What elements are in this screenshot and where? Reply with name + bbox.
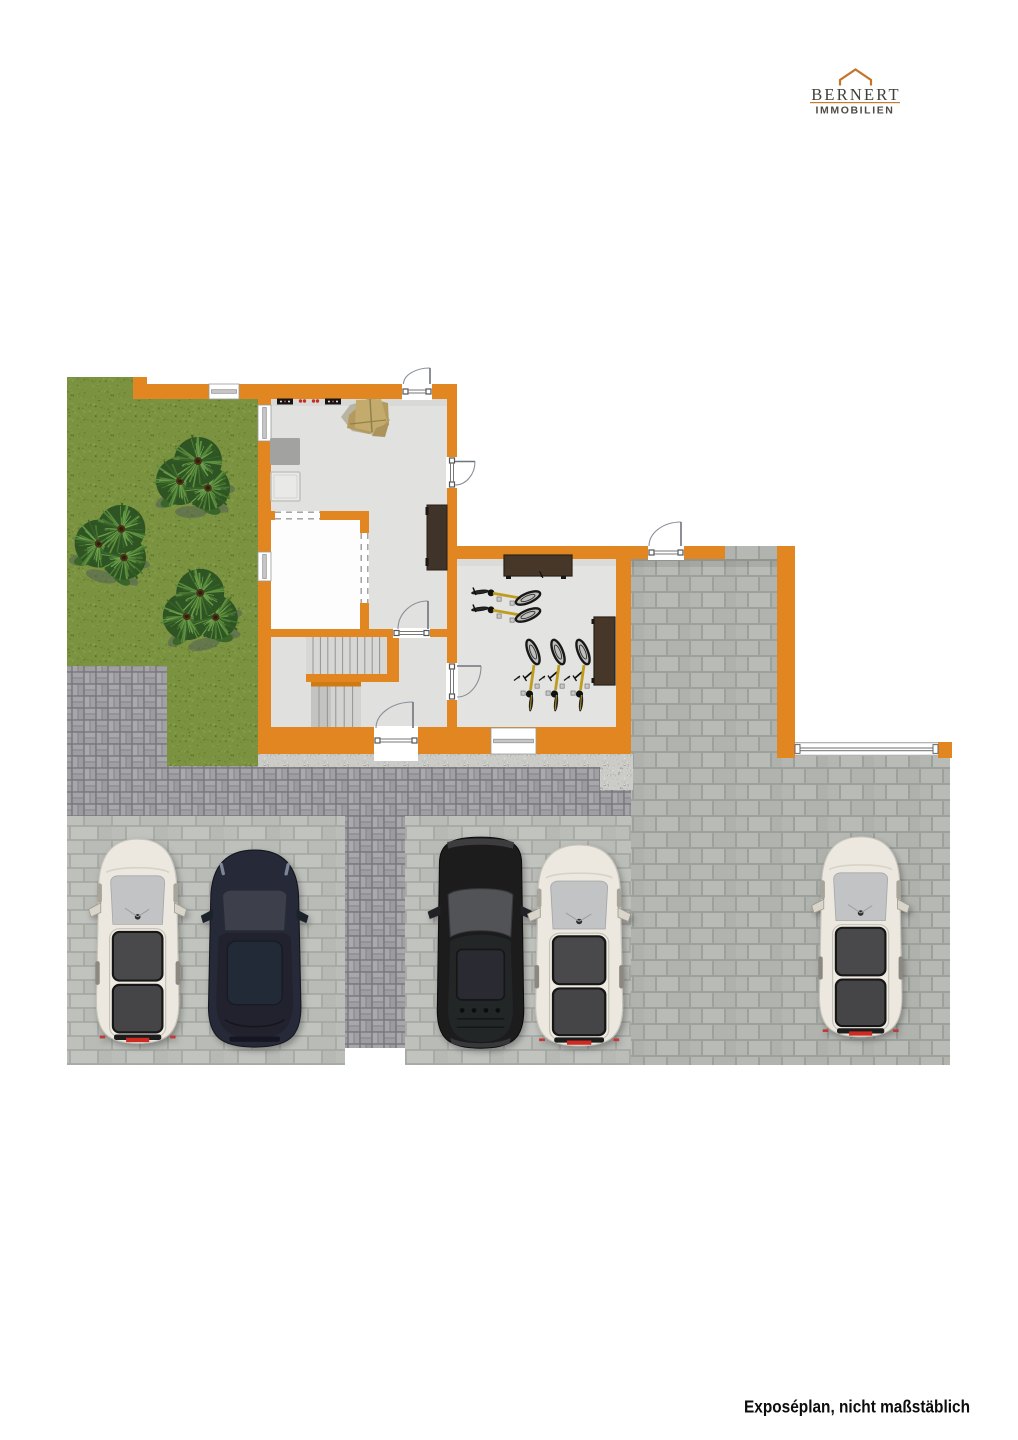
svg-text:IMMOBILIEN: IMMOBILIEN — [816, 105, 895, 117]
svg-text:BERNERT: BERNERT — [811, 85, 901, 104]
svg-text:Exposéplan, nicht maßstäblich: Exposéplan, nicht maßstäblich — [744, 1397, 970, 1417]
